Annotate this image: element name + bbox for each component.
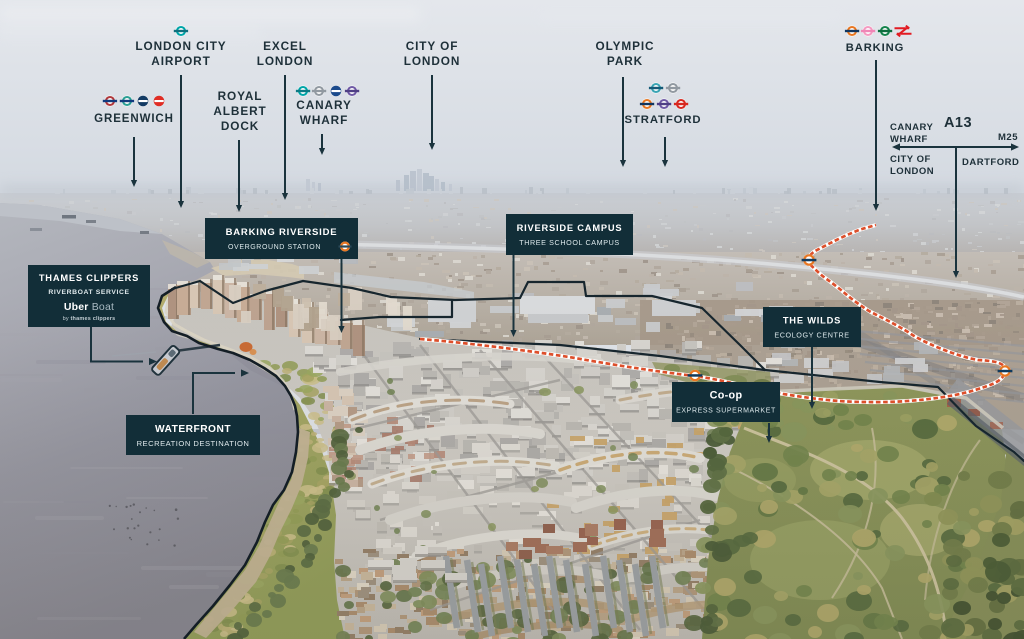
svg-text:RIVERBOAT SERVICE: RIVERBOAT SERVICE bbox=[48, 289, 129, 296]
svg-text:A13: A13 bbox=[944, 115, 972, 131]
svg-text:RIVERSIDE CAMPUS: RIVERSIDE CAMPUS bbox=[517, 223, 623, 233]
svg-text:AIRPORT: AIRPORT bbox=[151, 54, 210, 68]
svg-text:LONDON: LONDON bbox=[257, 54, 314, 68]
svg-text:EXPRESS SUPERMARKET: EXPRESS SUPERMARKET bbox=[676, 408, 776, 415]
svg-text:M25: M25 bbox=[998, 132, 1018, 143]
svg-text:WATERFRONT: WATERFRONT bbox=[155, 424, 231, 435]
svg-text:THAMES CLIPPERS: THAMES CLIPPERS bbox=[39, 273, 139, 283]
svg-text:CITY OF: CITY OF bbox=[890, 154, 931, 165]
svg-text:BARKING RIVERSIDE: BARKING RIVERSIDE bbox=[226, 227, 338, 238]
svg-text:by thames clippers: by thames clippers bbox=[63, 316, 116, 322]
svg-text:LONDON: LONDON bbox=[404, 54, 461, 68]
svg-text:CITY OF: CITY OF bbox=[406, 39, 459, 53]
svg-text:THE WILDS: THE WILDS bbox=[783, 316, 841, 326]
svg-text:CANARY: CANARY bbox=[890, 122, 933, 133]
svg-text:WHARF: WHARF bbox=[890, 134, 928, 145]
svg-text:LONDON: LONDON bbox=[890, 166, 934, 177]
svg-text:ROYAL: ROYAL bbox=[218, 89, 263, 103]
svg-text:EXCEL: EXCEL bbox=[263, 39, 307, 53]
svg-text:Co-op: Co-op bbox=[710, 390, 743, 402]
svg-text:CANARY: CANARY bbox=[296, 98, 351, 112]
svg-text:Uber Boat: Uber Boat bbox=[64, 301, 114, 313]
svg-text:PARK: PARK bbox=[607, 54, 643, 68]
svg-text:STRATFORD: STRATFORD bbox=[625, 114, 702, 126]
svg-text:RECREATION DESTINATION: RECREATION DESTINATION bbox=[137, 439, 250, 448]
svg-text:DOCK: DOCK bbox=[221, 119, 259, 133]
svg-text:THREE SCHOOL CAMPUS: THREE SCHOOL CAMPUS bbox=[519, 238, 620, 247]
svg-text:BARKING: BARKING bbox=[846, 42, 905, 54]
svg-text:GREENWICH: GREENWICH bbox=[94, 113, 174, 125]
svg-text:OLYMPIC: OLYMPIC bbox=[596, 39, 655, 53]
svg-text:OVERGROUND STATION: OVERGROUND STATION bbox=[228, 244, 321, 251]
svg-text:ECOLOGY CENTRE: ECOLOGY CENTRE bbox=[774, 331, 849, 340]
svg-text:ALBERT: ALBERT bbox=[213, 104, 266, 118]
svg-text:WHARF: WHARF bbox=[300, 113, 348, 127]
svg-text:DARTFORD: DARTFORD bbox=[962, 157, 1019, 168]
svg-text:LONDON CITY: LONDON CITY bbox=[135, 39, 226, 53]
